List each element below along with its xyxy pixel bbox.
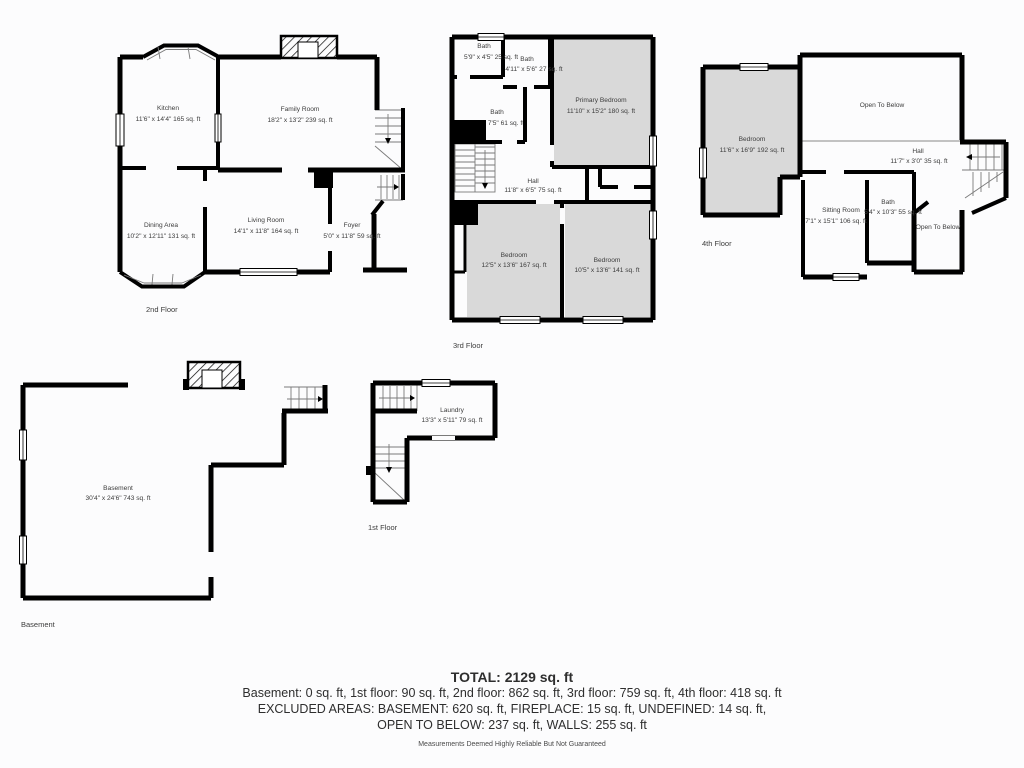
room-name-bath-1: Bath [477, 43, 491, 50]
floor-label-basement: Basement [21, 620, 56, 629]
floor-label-2nd: 2nd Floor [146, 305, 178, 314]
floorplan-3rd-floor: Bath 8'3" x 7'5" 61 sq. ft Bath 5'9" x 4… [452, 34, 657, 351]
walls [120, 46, 407, 287]
stairs [375, 110, 403, 170]
room-dims-hall: 11'8" x 6'5" 75 sq. ft [504, 187, 561, 194]
room-name-open-to-below-bottom: Open To Below [916, 224, 961, 231]
chimney [452, 120, 486, 142]
room-dims-bedroom: 11'6" x 16'9" 192 sq. ft [720, 147, 785, 154]
room-name-bedroom: Bedroom [739, 136, 766, 143]
room-name-family-room: Family Room [281, 106, 320, 113]
room-dims-bath-1: 5'9" x 4'5" 25 sq. ft [464, 54, 518, 61]
room-dims-bedroom-left: 12'5" x 13'6" 167 sq. ft [481, 262, 546, 269]
floorplan-2nd-floor: Kitchen 11'6" x 14'4" 165 sq. ft Family … [116, 36, 407, 314]
room-name-bath: Bath [881, 199, 895, 206]
room-name-kitchen: Kitchen [157, 105, 179, 112]
floor-plans-canvas: Kitchen 11'6" x 14'4" 165 sq. ft Family … [0, 0, 1024, 660]
floor-label-3rd: 3rd Floor [453, 341, 484, 350]
room-dims-bedroom-right: 10'5" x 13'6" 141 sq. ft [574, 267, 639, 274]
room-dims-family-room: 18'2" x 13'2" 239 sq. ft [267, 117, 332, 124]
area-summary: TOTAL: 2129 sq. ft Basement: 0 sq. ft, 1… [0, 669, 1024, 748]
fireplace-icon [281, 36, 337, 58]
floor-areas-line: Basement: 0 sq. ft, 1st floor: 90 sq. ft… [0, 685, 1024, 701]
room-name-living-room: Living Room [248, 217, 285, 224]
stairs [379, 385, 417, 411]
open-to-below-line: OPEN TO BELOW: 237 sq. ft, WALLS: 255 sq… [0, 717, 1024, 733]
room-dims-bath-2: 4'11" x 5'6" 27 sq. ft [505, 66, 562, 73]
chimney [452, 202, 478, 225]
stairs [962, 144, 1006, 198]
stairs [375, 444, 405, 500]
walls [23, 385, 328, 598]
stairs [455, 144, 495, 192]
floor-plan-sheet: { "colors": { "background": "#fcfcfd", "… [0, 0, 1024, 768]
room-dims-sitting-room: 7'1" x 15'1" 106 sq. ft [805, 218, 867, 225]
fireplace-icon [183, 362, 245, 390]
room-name-hall: Hall [527, 178, 539, 185]
total-area: TOTAL: 2129 sq. ft [0, 669, 1024, 685]
room-name-foyer: Foyer [344, 222, 362, 229]
floorplan-basement: Basement 30'4" x 24'6" 743 sq. ft Baseme… [20, 362, 329, 629]
room-dims-basement: 30'4" x 24'6" 743 sq. ft [85, 495, 150, 502]
room-dims-living-room: 14'1" x 11'8" 164 sq. ft [234, 228, 299, 235]
walls [366, 383, 495, 502]
stairs [284, 387, 325, 411]
room-name-sitting-room: Sitting Room [822, 207, 860, 214]
excluded-areas-line: EXCLUDED AREAS: BASEMENT: 620 sq. ft, FI… [0, 701, 1024, 717]
floorplan-1st-floor: Laundry 13'3" x 5'11" 79 sq. ft 1st Floo… [366, 380, 495, 533]
stairs [375, 175, 403, 200]
room-shade-bedroom-left [467, 204, 560, 317]
room-name-bath-2: Bath [520, 56, 534, 63]
floor-label-4th: 4th Floor [702, 239, 732, 248]
room-dims-laundry: 13'3" x 5'11" 79 sq. ft [422, 417, 483, 424]
room-dims-hall: 11'7" x 3'0" 35 sq. ft [890, 158, 947, 165]
room-name-laundry: Laundry [440, 407, 465, 414]
room-name-bedroom-right: Bedroom [594, 257, 621, 264]
room-dims-dining-area: 10'2" x 12'11" 131 sq. ft [127, 233, 195, 240]
room-name-primary-bedroom: Primary Bedroom [575, 97, 627, 104]
room-dims-primary-bedroom: 11'10" x 15'2" 180 sq. ft [567, 108, 635, 115]
room-name-dining-area: Dining Area [144, 222, 178, 229]
floor-label-1st: 1st Floor [368, 523, 398, 532]
room-name-hall: Hall [912, 148, 924, 155]
floorplan-4th-floor: Bedroom 11'6" x 16'9" 192 sq. ft Open To… [700, 55, 1007, 281]
chimney [314, 172, 333, 188]
room-name-basement: Basement [103, 485, 133, 492]
room-dims-bath: 5'4" x 10'3" 55 sq. ft [864, 209, 922, 216]
room-name-open-to-below-top: Open To Below [860, 102, 905, 109]
room-name-bedroom-left: Bedroom [501, 252, 528, 259]
disclaimer: Measurements Deemed Highly Reliable But … [0, 741, 1024, 748]
room-name-bath-3: Bath [490, 109, 504, 116]
room-dims-foyer: 5'0" x 11'8" 59 sq. ft [323, 233, 380, 240]
room-dims-kitchen: 11'6" x 14'4" 165 sq. ft [136, 116, 201, 123]
